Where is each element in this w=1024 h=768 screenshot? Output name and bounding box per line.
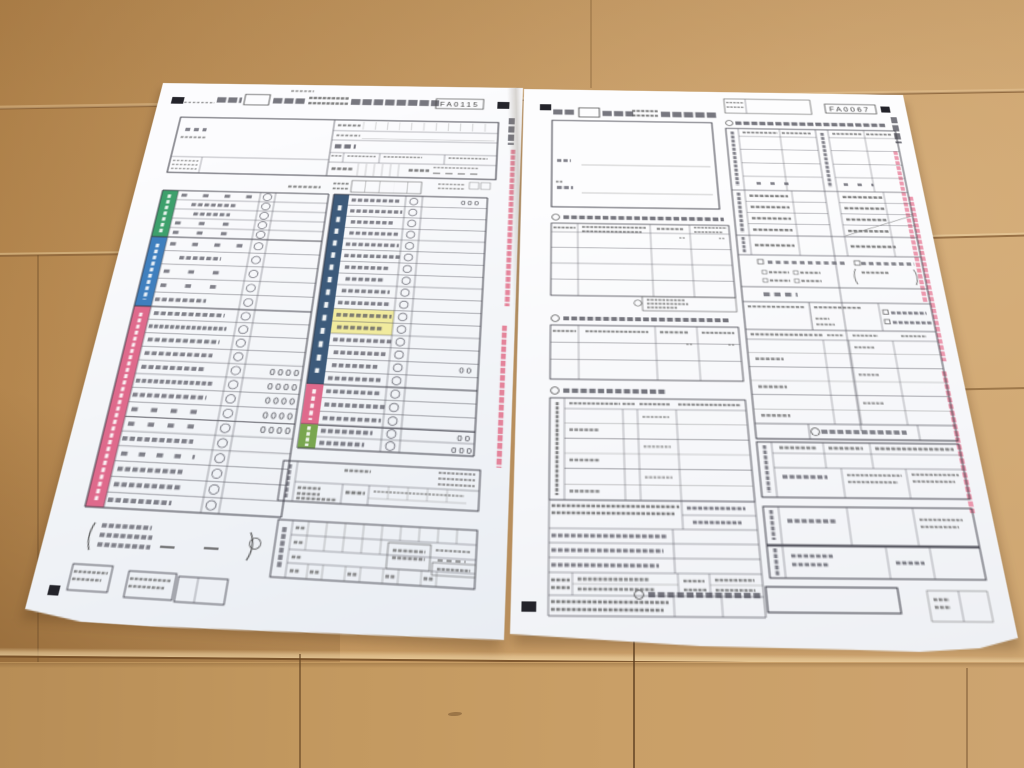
svg-text:FA0115: FA0115 — [440, 102, 480, 109]
svg-text:0 0: 0 0 — [457, 434, 471, 444]
svg-text:0 0 0 0: 0 0 0 0 — [267, 383, 298, 393]
svg-text:0 0 0 0: 0 0 0 0 — [262, 412, 293, 422]
svg-text:0 0 0 0: 0 0 0 0 — [269, 369, 300, 379]
svg-text:0 0: 0 0 — [459, 367, 472, 376]
svg-text:0 0 0: 0 0 0 — [461, 200, 480, 208]
svg-text:0 0 0 0: 0 0 0 0 — [259, 426, 291, 437]
svg-text:FA0067: FA0067 — [829, 106, 871, 113]
svg-text:0 0 0 0: 0 0 0 0 — [264, 397, 295, 407]
